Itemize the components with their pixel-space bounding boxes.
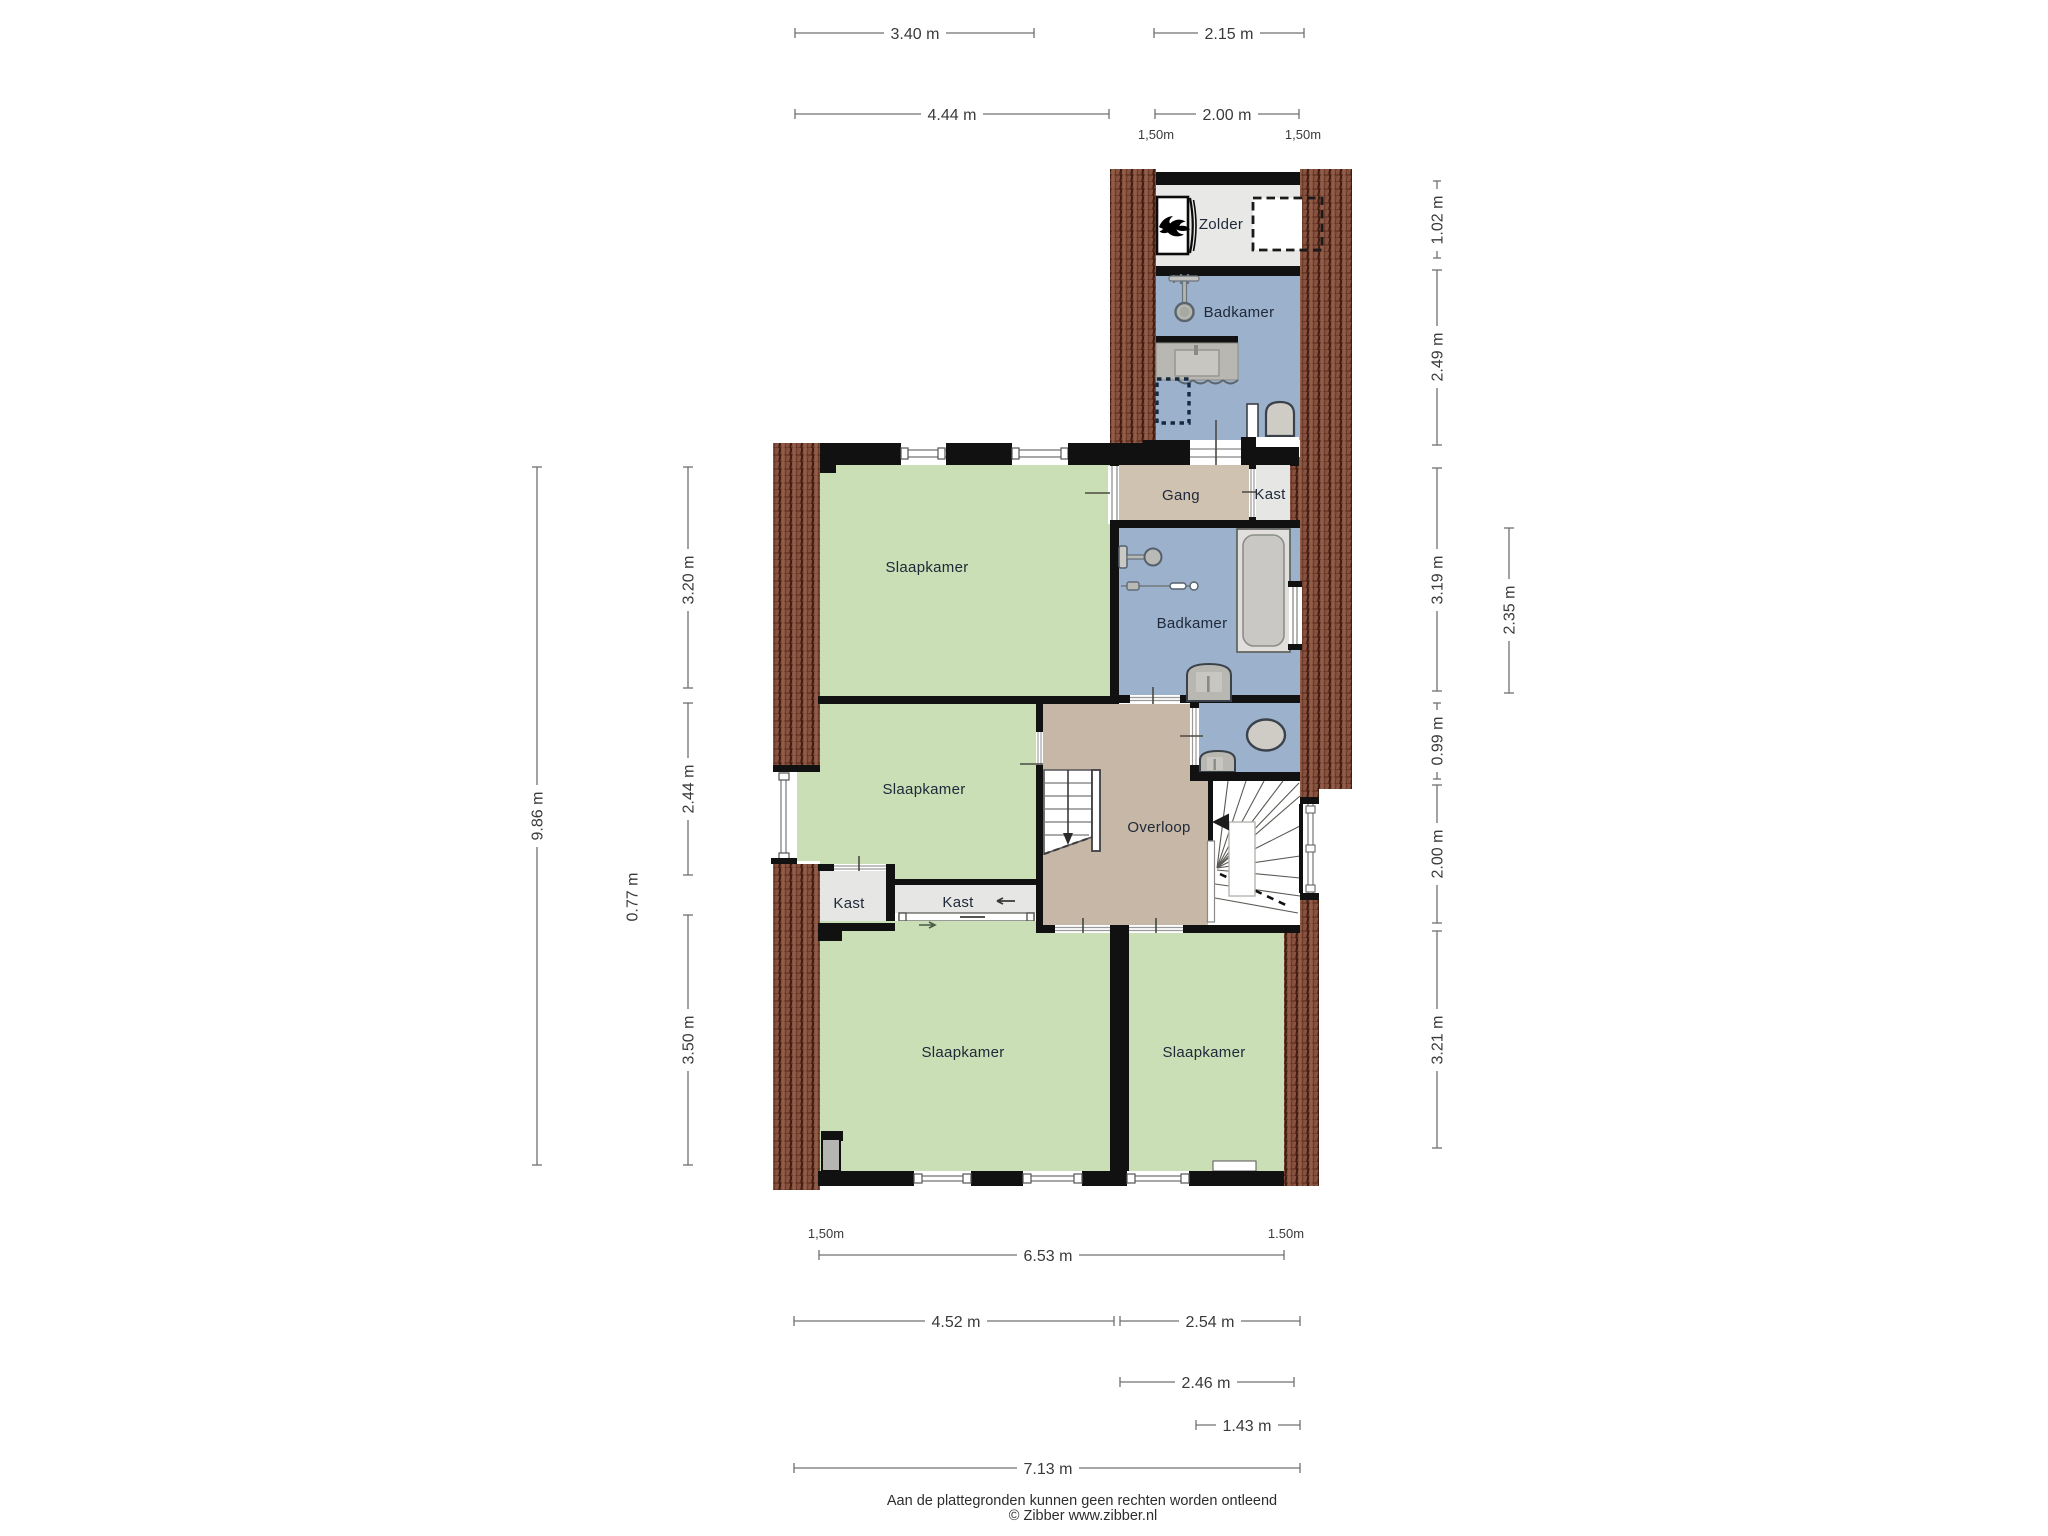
svg-text:1.43 m: 1.43 m [1223,1418,1272,1435]
svg-text:Badkamer: Badkamer [1157,615,1228,632]
svg-text:1.02 m: 1.02 m [1430,196,1447,245]
svg-text:Aan de plattegronden kunnen ge: Aan de plattegronden kunnen geen rechten… [887,1493,1277,1509]
svg-text:Slaapkamer: Slaapkamer [882,781,965,798]
svg-text:Slaapkamer: Slaapkamer [885,559,968,576]
svg-text:2.44 m: 2.44 m [681,765,698,814]
svg-text:1,50m: 1,50m [808,1226,844,1241]
svg-text:6.53 m: 6.53 m [1024,1248,1073,1265]
svg-text:0.77 m: 0.77 m [625,873,642,922]
svg-text:Zolder: Zolder [1199,216,1243,233]
svg-text:1,50m: 1,50m [1285,127,1321,142]
svg-text:1.50m: 1.50m [1268,1226,1304,1241]
svg-text:Overloop: Overloop [1127,819,1190,836]
svg-text:3.40 m: 3.40 m [891,26,940,43]
svg-text:4.52 m: 4.52 m [932,1314,981,1331]
svg-text:3.20 m: 3.20 m [681,556,698,605]
svg-text:Kast: Kast [833,895,865,912]
svg-text:2.54 m: 2.54 m [1186,1314,1235,1331]
svg-text:0.99 m: 0.99 m [1430,717,1447,766]
svg-text:4.44 m: 4.44 m [928,107,977,124]
svg-text:Kast: Kast [1254,486,1286,503]
svg-text:Kast: Kast [942,894,974,911]
svg-text:© Zibber www.zibber.nl: © Zibber www.zibber.nl [1009,1508,1158,1524]
svg-text:Gang: Gang [1162,487,1200,504]
svg-text:7.13 m: 7.13 m [1024,1461,1073,1478]
svg-text:3.19 m: 3.19 m [1430,556,1447,605]
svg-text:2.00 m: 2.00 m [1430,830,1447,879]
svg-text:2.35 m: 2.35 m [1502,586,1519,635]
svg-text:1,50m: 1,50m [1138,127,1174,142]
svg-text:Slaapkamer: Slaapkamer [1162,1044,1245,1061]
svg-text:3.50 m: 3.50 m [681,1016,698,1065]
svg-text:Badkamer: Badkamer [1204,304,1275,321]
svg-text:2.49 m: 2.49 m [1430,333,1447,382]
svg-text:2.15 m: 2.15 m [1205,26,1254,43]
svg-text:2.00 m: 2.00 m [1203,107,1252,124]
svg-text:3.21 m: 3.21 m [1430,1016,1447,1065]
svg-text:2.46 m: 2.46 m [1182,1375,1231,1392]
svg-text:9.86 m: 9.86 m [530,792,547,841]
svg-text:Slaapkamer: Slaapkamer [921,1044,1004,1061]
